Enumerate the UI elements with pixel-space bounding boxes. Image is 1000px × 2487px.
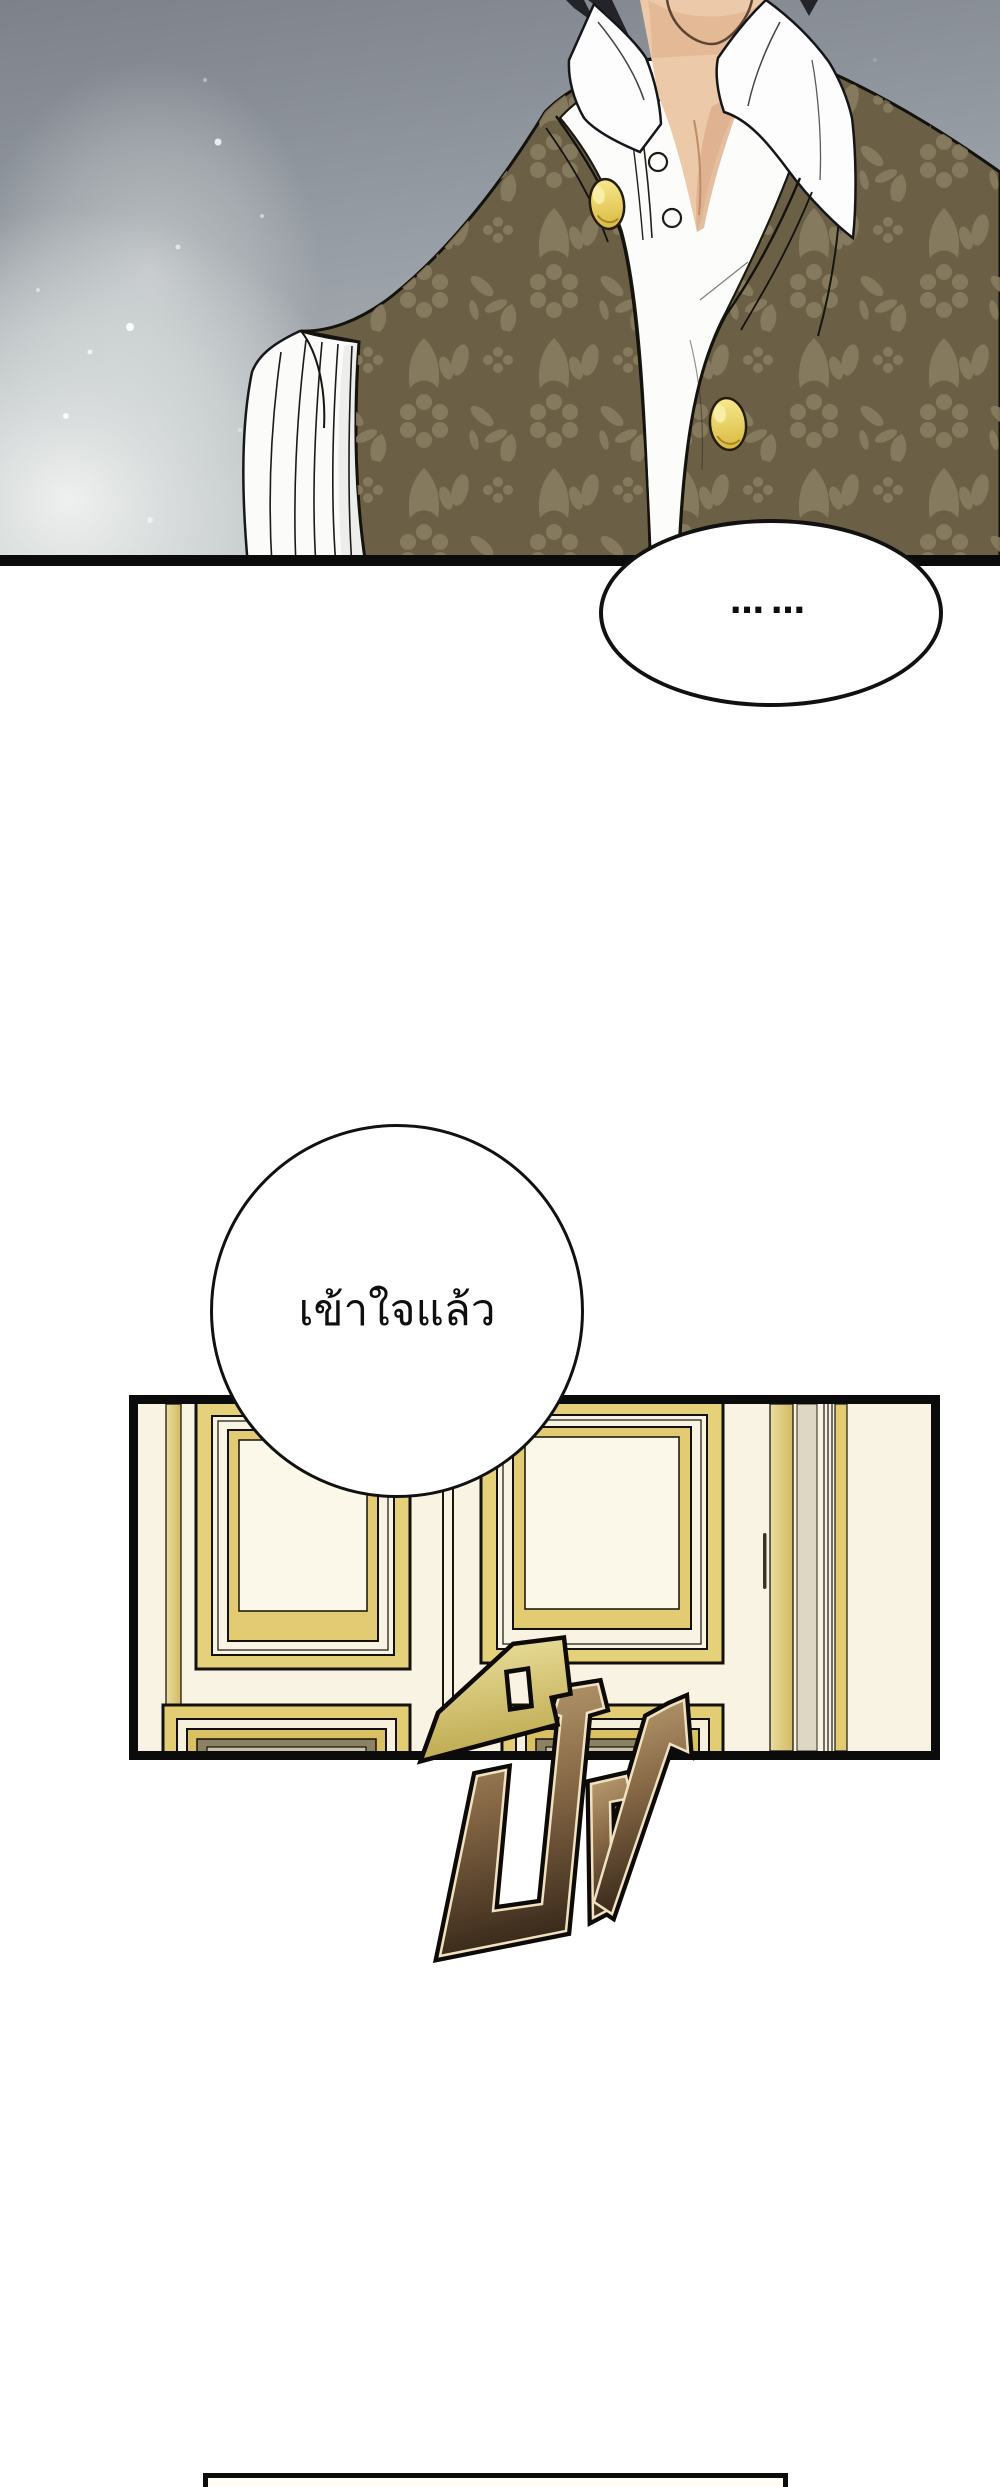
- door-gap-shadow: [763, 1533, 767, 1589]
- shirt-button: [649, 153, 667, 171]
- character-panel: [0, 0, 1000, 566]
- shirt-button: [663, 209, 681, 227]
- wall-pilaster-stripes: [763, 1404, 847, 1751]
- thought-bubble-text: เข้าใจแล้ว: [298, 1285, 495, 1338]
- ellipsis-text: ……: [730, 582, 812, 622]
- sfx-letter-ngo: [591, 1700, 688, 1918]
- sfx-vowel-mark: [424, 1640, 568, 1758]
- thought-bubble: เข้าใจแล้ว: [210, 1124, 584, 1498]
- next-panel-edge: [203, 2473, 788, 2487]
- ellipsis-speech-bubble: ……: [599, 519, 943, 707]
- sfx-bang: ปัง: [398, 1626, 718, 1996]
- sleeve-drape: [243, 331, 368, 566]
- comic-page: …… เข้าใจแล้ว: [0, 0, 1000, 2487]
- wall-stripe-gold: [166, 1404, 181, 1751]
